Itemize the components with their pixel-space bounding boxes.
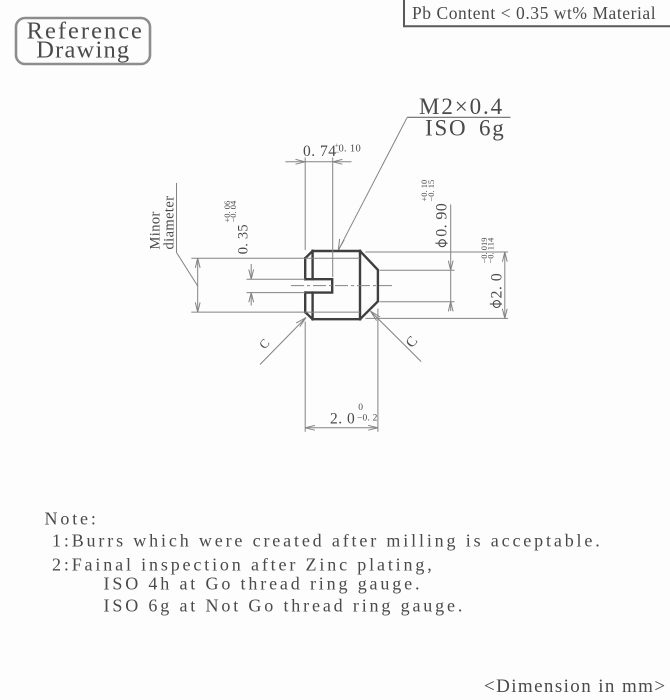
svg-text:2. 0: 2. 0 <box>330 411 355 428</box>
svg-text:2. 0: 2. 0 <box>488 273 505 299</box>
svg-text:0. 90: 0. 90 <box>434 203 451 237</box>
svg-text:2:Fainal inspection after Zinc: 2:Fainal inspection after Zinc plating, <box>52 555 435 575</box>
svg-text:ISO 4h at Go thread ring gauge: ISO 4h at Go thread ring gauge. <box>104 574 423 594</box>
svg-text:−0. 15: −0. 15 <box>426 180 436 202</box>
svg-text:ISO 6g at Not Go thread ring g: ISO 6g at Not Go thread ring gauge. <box>104 596 466 616</box>
svg-text:−0. 2: −0. 2 <box>357 414 378 424</box>
svg-text:−0. 04: −0. 04 <box>228 200 238 223</box>
svg-text:Drawing: Drawing <box>36 36 130 63</box>
svg-text:ISO 6g: ISO 6g <box>425 116 506 141</box>
svg-text:diameter: diameter <box>162 196 178 250</box>
svg-text:C: C <box>256 336 272 351</box>
svg-text:−0. 114: −0. 114 <box>486 237 496 263</box>
svg-text:1:Burrs which were created aft: 1:Burrs which were created after milling… <box>52 531 603 551</box>
svg-text:<Dimension in mm>: <Dimension in mm> <box>484 676 666 697</box>
svg-text:0: 0 <box>358 403 363 413</box>
svg-text:C: C <box>403 333 421 351</box>
svg-text:0. 74: 0. 74 <box>303 143 337 160</box>
svg-text:Note:: Note: <box>45 509 99 529</box>
svg-text:0. 35: 0. 35 <box>236 224 252 254</box>
svg-text:Pb Content < 0.35 wt% Material: Pb Content < 0.35 wt% Material <box>412 3 656 23</box>
svg-text:0. 10: 0. 10 <box>339 144 362 155</box>
